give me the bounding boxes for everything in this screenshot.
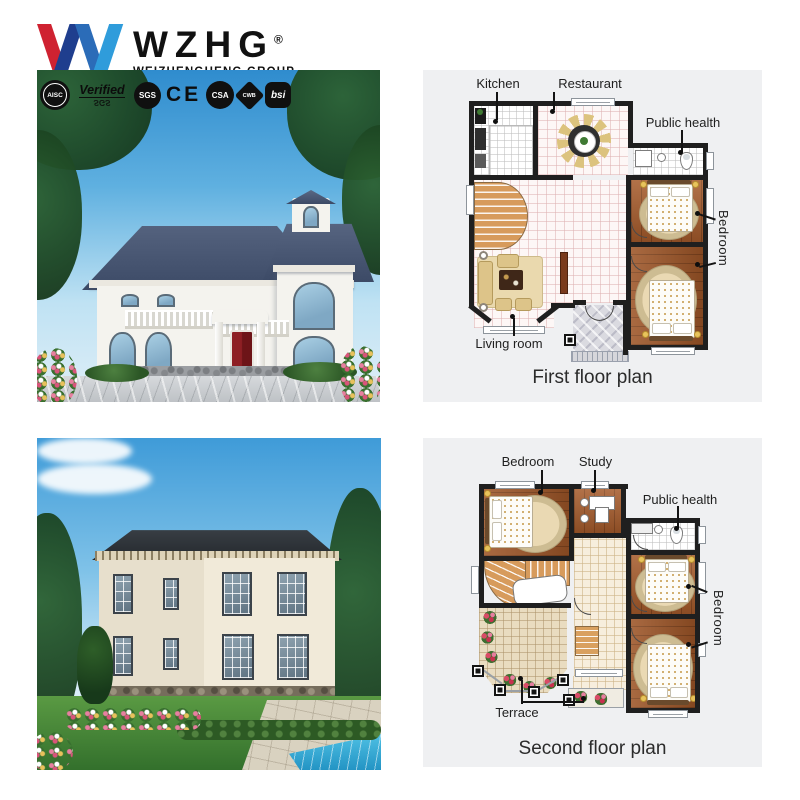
first-floor-plan-panel: Kitchen Restaurant Public health Bedroom…: [423, 70, 762, 402]
window: [648, 710, 688, 718]
second-floor-caption: Second floor plan: [423, 738, 762, 760]
shower: [635, 150, 652, 167]
tower-window-upper: [293, 282, 335, 330]
bedroom-right-label: Bedroom: [711, 590, 726, 660]
terrace-post: [557, 674, 569, 686]
label-pointer: [686, 642, 691, 647]
window: [651, 347, 695, 355]
wall-segment: [469, 101, 474, 180]
terrace-post: [494, 684, 506, 696]
pillow: [492, 500, 502, 519]
bed-headboard: [649, 336, 693, 341]
label-pointer: [695, 211, 700, 216]
pillow: [648, 562, 666, 572]
label-leader: [681, 130, 683, 152]
label-pointer: [674, 526, 679, 531]
first-floor-caption: First floor plan: [423, 367, 762, 389]
terrace-post: [472, 665, 484, 677]
window: [706, 152, 714, 170]
wall-segment: [533, 101, 538, 175]
armchair: [515, 298, 532, 311]
study-desk: [595, 507, 609, 523]
window: [113, 636, 133, 676]
upper-window: [157, 294, 175, 307]
label-leader: [522, 701, 584, 703]
floor-lamp: [479, 251, 488, 260]
second-floor-plan-panel: Bedroom Study Public health Bedroom Terr…: [423, 438, 762, 767]
pillow: [492, 522, 502, 541]
pillow: [673, 323, 692, 334]
bsi-badge-icon: bsi: [265, 82, 291, 108]
terrace-flowers: [484, 651, 499, 663]
terrace-flowers: [480, 631, 495, 644]
wall-segment: [479, 484, 484, 608]
label-pointer: [581, 696, 586, 701]
terrace-flowers: [482, 611, 498, 624]
label-pointer: [686, 584, 691, 589]
label-pointer: [518, 676, 523, 681]
pillow: [650, 187, 669, 197]
sgs-badge-icon: SGS: [134, 82, 161, 109]
window: [698, 526, 706, 544]
label-leader: [553, 92, 555, 110]
certification-badges: AISC Verified SGS SGS CE CSA CWB bsi: [40, 80, 291, 110]
label-pointer: [538, 490, 543, 495]
ce-badge-icon: CE: [166, 83, 201, 107]
table-plant: [580, 137, 588, 145]
label-pointer: [591, 488, 596, 493]
label-pointer: [678, 150, 683, 155]
label-pointer: [493, 119, 498, 124]
window: [277, 634, 309, 680]
pillow: [668, 562, 686, 572]
restaurant-label: Restaurant: [548, 76, 632, 91]
wall-segment: [626, 550, 700, 555]
pillow: [671, 187, 690, 197]
wall-segment: [628, 143, 708, 148]
bedside-lamp: [485, 491, 490, 496]
window: [163, 638, 179, 670]
console-table: [560, 252, 568, 294]
cwb-badge-icon: CWB: [235, 80, 265, 110]
flower-box-flowers: [593, 693, 609, 705]
csa-badge-icon: CSA: [206, 81, 234, 109]
plant: [477, 109, 483, 115]
label-leader: [677, 506, 679, 528]
sink: [654, 525, 663, 534]
flower-bed: [339, 346, 380, 402]
verified-badge-icon: Verified SGS: [75, 80, 129, 110]
public-health-label: Public health: [635, 115, 731, 130]
armchair: [497, 254, 519, 268]
living-room-label: Living room: [463, 336, 555, 351]
bedside-lamp: [695, 332, 700, 337]
window: [575, 669, 623, 677]
wall-segment: [569, 484, 574, 561]
cloud: [37, 464, 152, 494]
wall-segment: [538, 175, 573, 180]
villa-front-photo: AISC Verified SGS SGS CE CSA CWB bsi: [37, 70, 380, 402]
label-leader: [496, 92, 498, 120]
villa-side-photo: [37, 438, 381, 770]
upper-window: [121, 294, 139, 307]
wall-segment: [626, 518, 700, 523]
stair-flight-small: [575, 626, 599, 656]
registered-mark: ®: [274, 33, 283, 47]
wall-segment: [573, 300, 586, 305]
study-chair: [580, 498, 589, 507]
window: [113, 574, 133, 614]
coffee-table: [499, 270, 523, 290]
study-label: Study: [568, 454, 623, 469]
pillow: [670, 687, 688, 698]
wall-segment: [469, 175, 538, 180]
terrace-post: [528, 686, 540, 698]
window: [222, 572, 252, 616]
wall-segment: [626, 614, 700, 619]
window: [471, 566, 479, 594]
kitchen-island: [489, 125, 533, 177]
bedside-lamp: [643, 332, 648, 337]
hedge: [177, 720, 381, 740]
bedside-lamp: [485, 546, 490, 551]
pillow: [652, 323, 671, 334]
wall-segment: [628, 101, 633, 148]
wall-segment: [626, 242, 708, 247]
window: [163, 578, 179, 610]
wall-segment: [623, 300, 628, 355]
wall-segment: [479, 603, 571, 608]
study-chair: [580, 514, 589, 523]
label-leader: [541, 470, 543, 492]
wall-segment: [479, 556, 571, 561]
cloud: [37, 438, 132, 464]
bedside-lamp: [641, 696, 646, 701]
bed-headboard: [647, 700, 689, 705]
dormer-window: [303, 206, 319, 228]
wall-segment: [628, 175, 708, 180]
aisc-badge-icon: AISC: [40, 80, 70, 110]
entrance-step: [571, 351, 629, 362]
flower-bed: [65, 708, 201, 730]
pillow: [650, 687, 668, 698]
brand-name: WZHG®: [133, 26, 363, 63]
bedroom-label: Bedroom: [716, 210, 731, 280]
bush: [85, 364, 149, 382]
public-health-label: Public health: [633, 492, 727, 507]
wall-segment: [569, 533, 626, 538]
bedroom-top-label: Bedroom: [483, 454, 573, 469]
window: [466, 185, 474, 215]
label-pointer: [695, 262, 700, 267]
sofa: [478, 261, 493, 305]
balcony-balustrade: [125, 310, 213, 329]
label-leader: [513, 318, 515, 336]
kitchen-label: Kitchen: [463, 76, 533, 91]
bedside-lamp: [689, 557, 694, 562]
bedside-lamp: [639, 557, 644, 562]
bedside-lamp: [641, 182, 646, 187]
conifer-tree: [77, 626, 113, 704]
kitchen-sink: [475, 154, 486, 168]
vanity: [631, 523, 653, 534]
tower-cornice: [273, 265, 355, 272]
label-leader: [594, 470, 596, 490]
window: [222, 634, 254, 680]
sink: [657, 153, 666, 162]
porch-post: [564, 334, 576, 346]
label-pointer: [510, 314, 515, 319]
armchair: [495, 298, 512, 311]
window: [277, 572, 307, 616]
terrace-post: [563, 694, 575, 706]
window: [571, 98, 615, 106]
bedside-lamp: [693, 182, 698, 187]
window: [495, 481, 535, 489]
label-pointer: [550, 109, 555, 114]
stove: [475, 128, 486, 150]
terrace-label: Terrace: [485, 705, 549, 720]
